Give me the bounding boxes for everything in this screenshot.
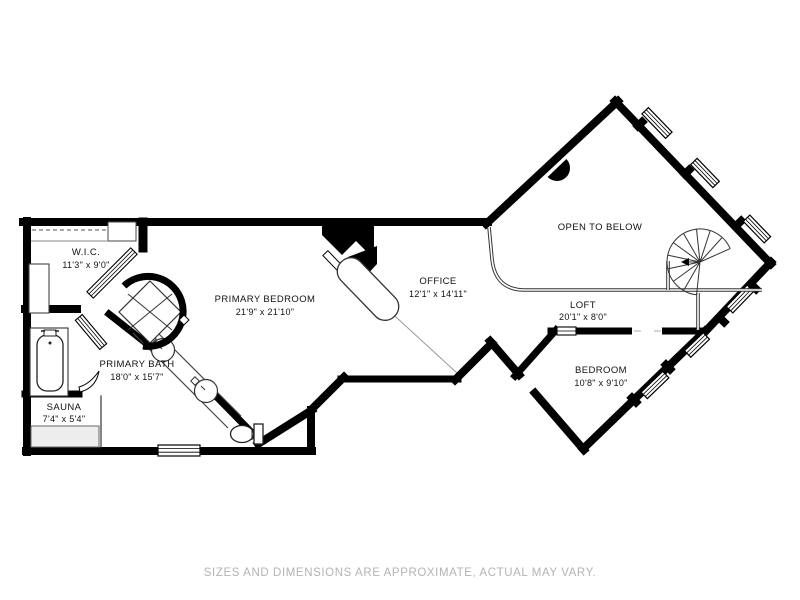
- window-icon: [557, 327, 576, 335]
- sauna-door-icon: [79, 371, 99, 392]
- sauna-bench-icon: [31, 426, 99, 447]
- room-dims-office: 12'1" x 14'11": [409, 289, 467, 299]
- windows: [158, 108, 771, 456]
- room-label-loft: LOFT: [570, 300, 596, 311]
- floor-plan: W.I.C. 11'3" x 9'0" PRIMARY BEDROOM 21'9…: [0, 0, 800, 600]
- room-label-sauna: SAUNA: [47, 402, 82, 413]
- spiral-staircase-icon: [667, 229, 730, 295]
- room-label-wic: W.I.C.: [72, 247, 100, 258]
- room-dims-primary-bedroom: 21'9" x 21'10": [236, 307, 295, 317]
- room-label-open-to-below: OPEN TO BELOW: [558, 222, 643, 233]
- disclaimer-text: SIZES AND DIMENSIONS ARE APPROXIMATE, AC…: [204, 567, 596, 579]
- shower-icon: [119, 276, 189, 346]
- floor-plan-page: W.I.C. 11'3" x 9'0" PRIMARY BEDROOM 21'9…: [0, 0, 800, 600]
- room-label-bedroom: BEDROOM: [575, 365, 627, 376]
- room-dims-sauna: 7'4" x 5'4": [43, 414, 86, 424]
- room-dims-loft: 20'1" x 8'0": [559, 312, 607, 322]
- wardrobe-icon: [29, 264, 49, 313]
- room-label-primary-bedroom: PRIMARY BEDROOM: [215, 294, 316, 305]
- room-dims-bedroom: 10'8" x 9'10": [574, 378, 627, 388]
- room-dims-wic: 11'3" x 9'0": [62, 260, 109, 270]
- bathtub-icon: [30, 328, 68, 396]
- room-label-office: OFFICE: [419, 276, 456, 287]
- room-label-primary-bath: PRIMARY BATH: [99, 359, 174, 370]
- door-icon: [75, 315, 106, 350]
- toilet-icon: [231, 424, 264, 444]
- window-icon: [158, 445, 200, 456]
- room-dims-primary-bath: 18'0" x 15'7": [110, 372, 163, 382]
